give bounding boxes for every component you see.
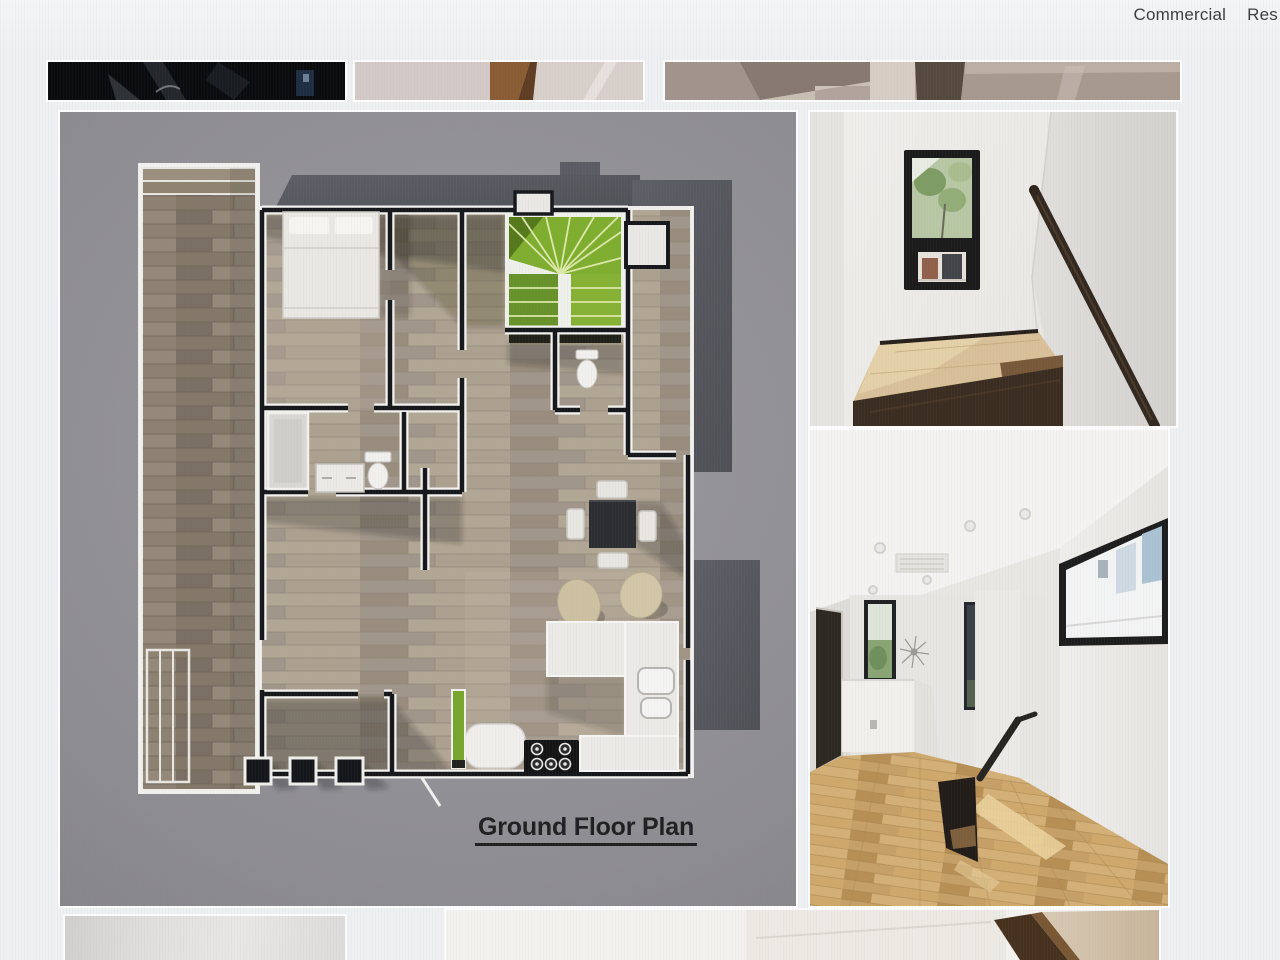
thumbnail-carpet-wood-image	[355, 62, 643, 100]
thumbnail-dark-interior[interactable]	[48, 62, 345, 100]
left-doorway	[816, 608, 842, 770]
thumbnail-stairs[interactable]	[665, 62, 1180, 100]
stove	[524, 740, 579, 773]
window	[904, 150, 980, 290]
photo-hallway[interactable]	[810, 430, 1168, 906]
thumbnail-dark-interior-image	[48, 62, 345, 100]
bed	[283, 212, 379, 318]
wc-toilet	[576, 350, 598, 388]
photo-stairwell-image	[810, 112, 1176, 426]
back-window	[864, 600, 896, 682]
photo-stairwell[interactable]	[810, 112, 1176, 426]
patio-planters	[245, 758, 363, 784]
landing-floor	[853, 331, 1064, 426]
floor-plan-title: Ground Floor Plan	[475, 813, 697, 846]
photo-partial-left[interactable]	[65, 916, 345, 960]
top-nav: Commercial Res	[1133, 0, 1280, 38]
floorplan-deck	[138, 163, 260, 794]
floorplan-stairs	[505, 213, 625, 343]
nav-link-residential[interactable]: Res	[1247, 4, 1278, 38]
thumbnail-carpet-wood[interactable]	[355, 62, 643, 100]
thumbnail-stairs-image	[665, 62, 1180, 100]
floor-plan-image[interactable]: Ground Floor Plan	[60, 112, 796, 906]
nav-link-commercial[interactable]: Commercial	[1133, 4, 1226, 38]
photo-partial-bottom[interactable]	[446, 910, 1159, 960]
photo-hallway-image	[810, 430, 1168, 906]
floor-plan-drawing	[60, 112, 796, 906]
real-estate-gallery-page: Commercial Res	[0, 0, 1280, 960]
photo-partial-bottom-image	[446, 910, 1159, 960]
